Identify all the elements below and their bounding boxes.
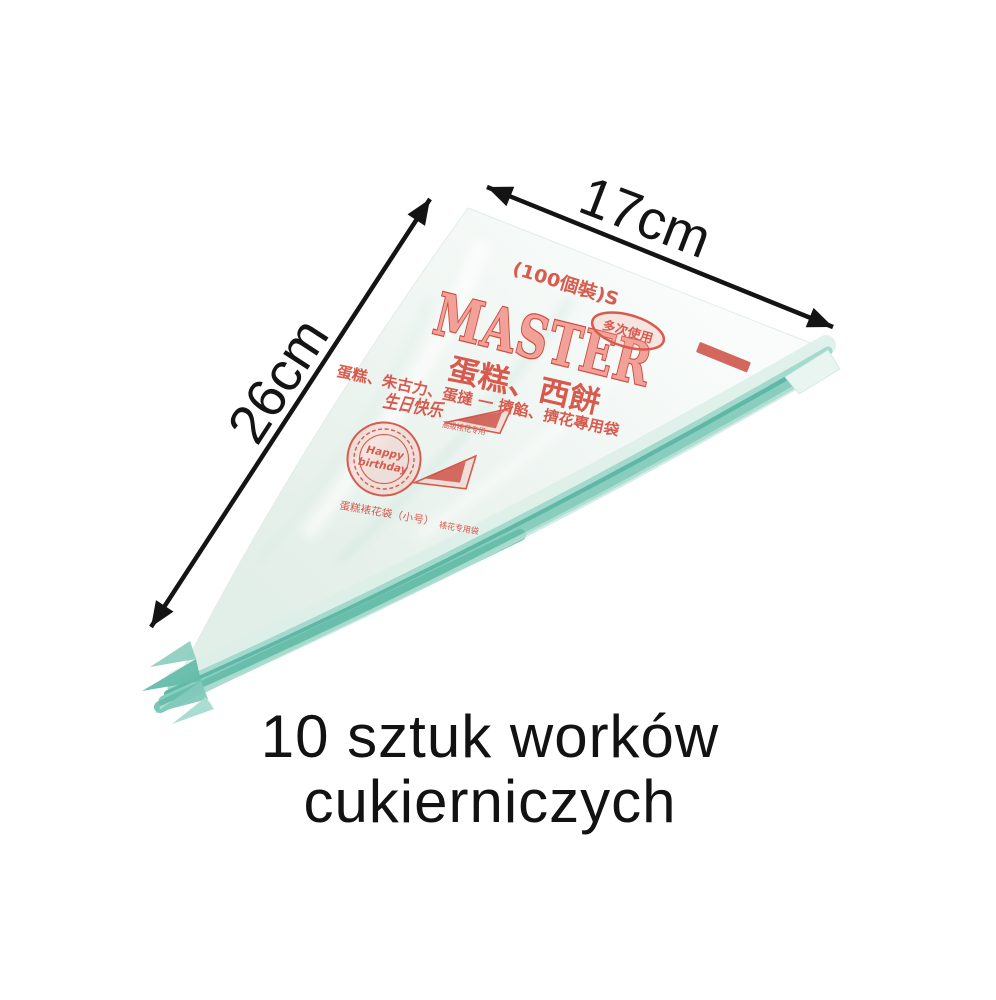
caption-line-2: cukierniczych bbox=[303, 768, 676, 835]
caption: 10 sztuk worków cukierniczych bbox=[261, 703, 720, 835]
scene: (100個裝)S MASTER 多次使用 蛋糕、西餅 蛋糕、朱古力、蛋撻 一 擠… bbox=[0, 0, 996, 1000]
bag-body bbox=[172, 208, 828, 690]
width-dimension-label: 17cm bbox=[572, 164, 720, 270]
caption-line-1: 10 sztuk worków bbox=[261, 703, 720, 770]
product-photo: (100個裝)S MASTER 多次使用 蛋糕、西餅 蛋糕、朱古力、蛋撻 一 擠… bbox=[0, 0, 996, 1000]
